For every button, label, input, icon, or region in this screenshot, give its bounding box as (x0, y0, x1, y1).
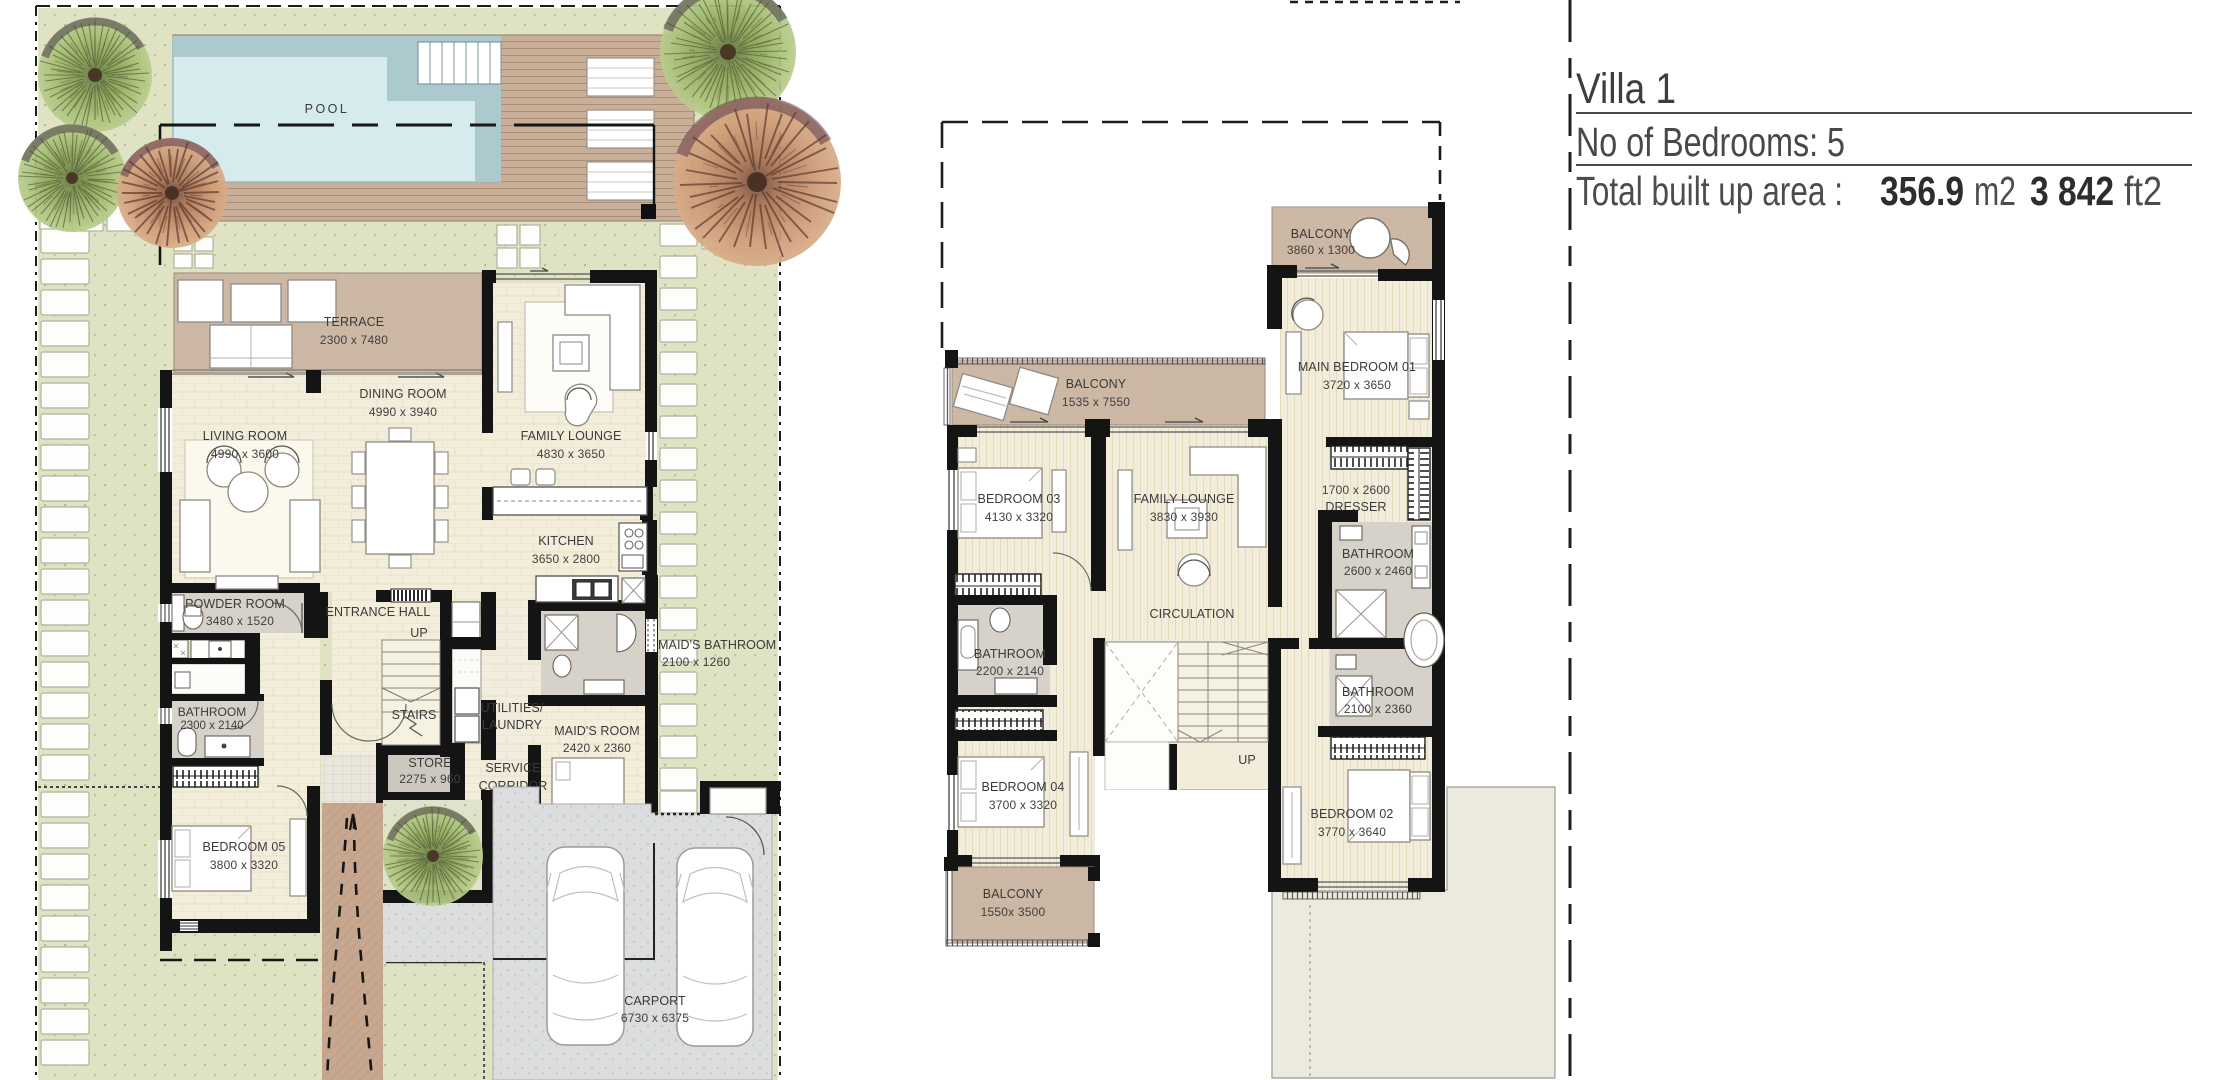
svg-text:2100 x 2360: 2100 x 2360 (1344, 702, 1412, 716)
svg-text:3720 x 3650: 3720 x 3650 (1323, 378, 1391, 392)
svg-text:2420 x 2360: 2420 x 2360 (563, 741, 631, 755)
svg-text:POWDER ROOM: POWDER ROOM (185, 597, 285, 611)
svg-text:POOL: POOL (305, 102, 350, 116)
svg-text:TERRACE: TERRACE (324, 315, 384, 329)
svg-text:BALCONY: BALCONY (1291, 227, 1352, 241)
svg-text:6730 x 6375: 6730 x 6375 (621, 1011, 689, 1025)
svg-text:BALCONY: BALCONY (983, 887, 1044, 901)
svg-text:BATHROOM: BATHROOM (178, 705, 246, 719)
svg-text:1700 x 2600: 1700 x 2600 (1322, 483, 1390, 497)
svg-text:2300 x 7480: 2300 x 7480 (320, 333, 388, 347)
svg-text:UP: UP (1238, 753, 1256, 767)
svg-text:CARPORT: CARPORT (624, 994, 686, 1008)
svg-text:3770 x 3640: 3770 x 3640 (1318, 825, 1386, 839)
svg-text:MAID'S BATHROOM: MAID'S BATHROOM (658, 638, 776, 652)
svg-text:1535 x 7550: 1535 x 7550 (1062, 395, 1130, 409)
svg-text:BATHROOM: BATHROOM (974, 647, 1046, 661)
svg-text:Total built up area :: Total built up area : (1576, 168, 1843, 214)
svg-text:3860 x 1300: 3860 x 1300 (1287, 243, 1355, 257)
svg-text:FAMILY LOUNGE: FAMILY LOUNGE (1134, 492, 1235, 506)
svg-text:BATHROOM: BATHROOM (1342, 547, 1414, 561)
svg-text:3650 x 2800: 3650 x 2800 (532, 552, 600, 566)
svg-text:4830 x 3650: 4830 x 3650 (537, 447, 605, 461)
svg-text:3700 x 3320: 3700 x 3320 (989, 798, 1057, 812)
svg-text:356.9: 356.9 (1880, 168, 1964, 214)
svg-text:3 842: 3 842 (2030, 168, 2114, 214)
svg-text:LIVING ROOM: LIVING ROOM (203, 429, 287, 443)
svg-text:2200 x 2140: 2200 x 2140 (976, 664, 1044, 678)
svg-text:BEDROOM 05: BEDROOM 05 (203, 840, 286, 854)
svg-text:BATHROOM: BATHROOM (1342, 685, 1414, 699)
svg-text:CIRCULATION: CIRCULATION (1150, 607, 1235, 621)
svg-text:2600 x 2460: 2600 x 2460 (1344, 564, 1412, 578)
svg-text:FAMILY LOUNGE: FAMILY LOUNGE (521, 429, 622, 443)
svg-text:3800 x 3320: 3800 x 3320 (210, 858, 278, 872)
svg-text:m2: m2 (1974, 168, 2016, 214)
svg-text:MAID'S ROOM: MAID'S ROOM (554, 724, 639, 738)
svg-text:BEDROOM 02: BEDROOM 02 (1311, 807, 1394, 821)
svg-text:4130 x 3320: 4130 x 3320 (985, 510, 1053, 524)
svg-text:1550x 3500: 1550x 3500 (981, 905, 1046, 919)
svg-text:4990 x 3940: 4990 x 3940 (369, 405, 437, 419)
svg-text:ft2: ft2 (2124, 168, 2162, 214)
svg-text:2300 x 2140: 2300 x 2140 (180, 720, 243, 732)
svg-text:3830 x 3930: 3830 x 3930 (1150, 510, 1218, 524)
svg-text:DINING ROOM: DINING ROOM (359, 387, 446, 401)
svg-text:BEDROOM 04: BEDROOM 04 (982, 780, 1065, 794)
svg-text:No of Bedrooms: 5: No of Bedrooms: 5 (1576, 119, 1845, 165)
svg-text:KITCHEN: KITCHEN (538, 534, 594, 548)
svg-text:MAIN BEDROOM 01: MAIN BEDROOM 01 (1298, 360, 1416, 374)
svg-text:ENTRANCE HALL: ENTRANCE HALL (326, 605, 431, 619)
svg-text:SERVICE: SERVICE (485, 761, 540, 775)
svg-text:STORE: STORE (408, 756, 451, 770)
svg-text:UTILITIES/: UTILITIES/ (481, 701, 544, 715)
svg-text:BALCONY: BALCONY (1066, 377, 1127, 391)
svg-text:Villa 1: Villa 1 (1576, 65, 1676, 113)
svg-text:2100 x 1260: 2100 x 1260 (662, 655, 730, 669)
svg-text:LAUNDRY: LAUNDRY (482, 718, 543, 732)
svg-text:STAIRS: STAIRS (392, 708, 437, 722)
svg-text:UP: UP (410, 626, 428, 640)
svg-text:4990 x 3600: 4990 x 3600 (211, 447, 279, 461)
svg-text:BEDROOM 03: BEDROOM 03 (978, 492, 1061, 506)
svg-text:2275 x 960: 2275 x 960 (399, 772, 461, 786)
svg-text:3480 x 1520: 3480 x 1520 (206, 614, 274, 628)
